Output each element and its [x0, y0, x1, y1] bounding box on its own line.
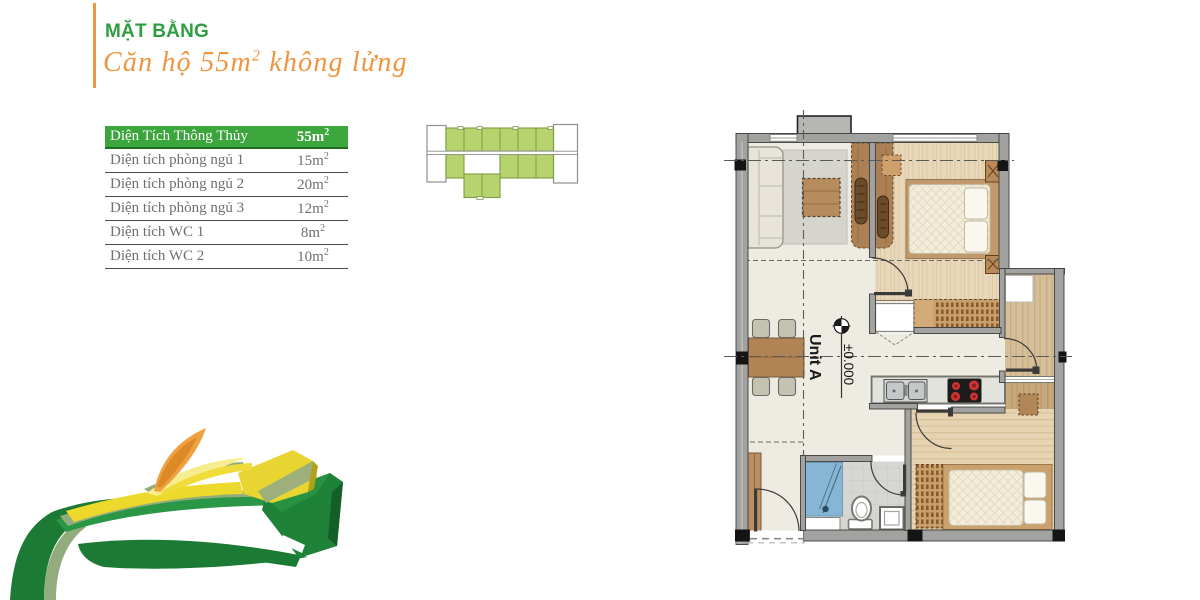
- svg-text:Unit A: Unit A: [806, 334, 823, 381]
- svg-text:±0.000: ±0.000: [841, 344, 856, 385]
